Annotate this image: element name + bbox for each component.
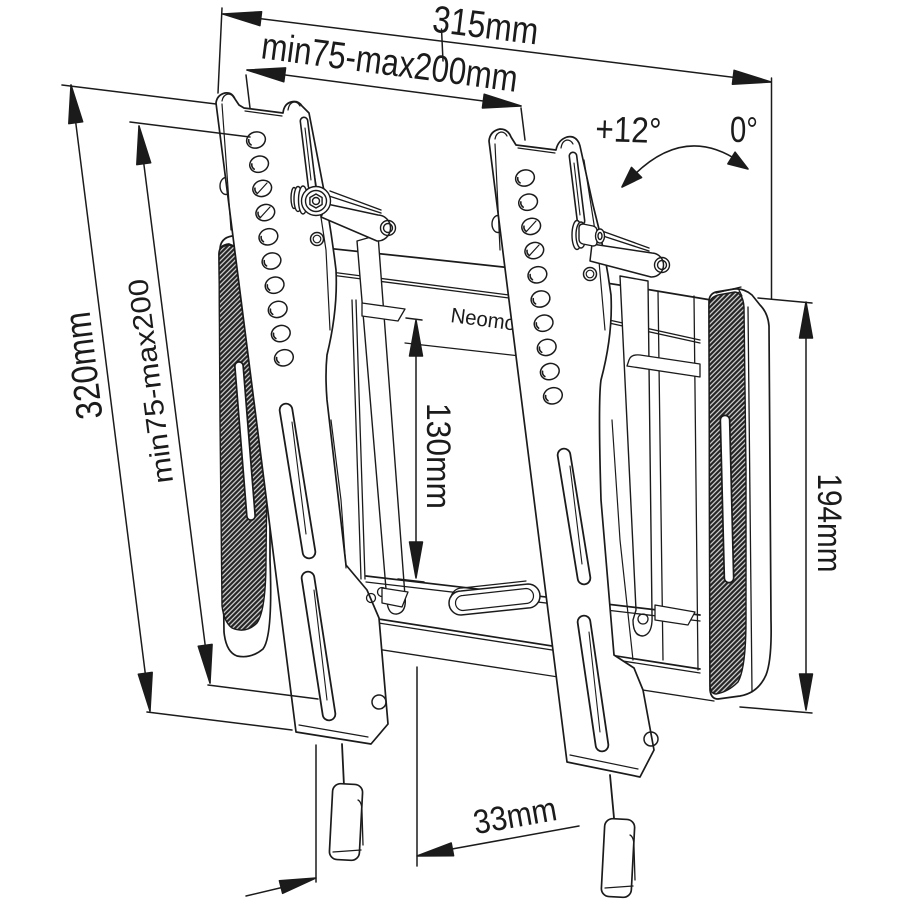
svg-text:315mm: 315mm [430,0,540,53]
svg-text:0°: 0° [730,109,758,150]
svg-text:min75-max200: min75-max200 [122,277,179,485]
svg-text:320mm: 320mm [57,309,111,421]
svg-text:+12°: +12° [595,108,662,151]
svg-text:194mm: 194mm [810,474,848,573]
svg-text:33mm: 33mm [470,790,559,842]
svg-text:130mm: 130mm [419,403,457,509]
